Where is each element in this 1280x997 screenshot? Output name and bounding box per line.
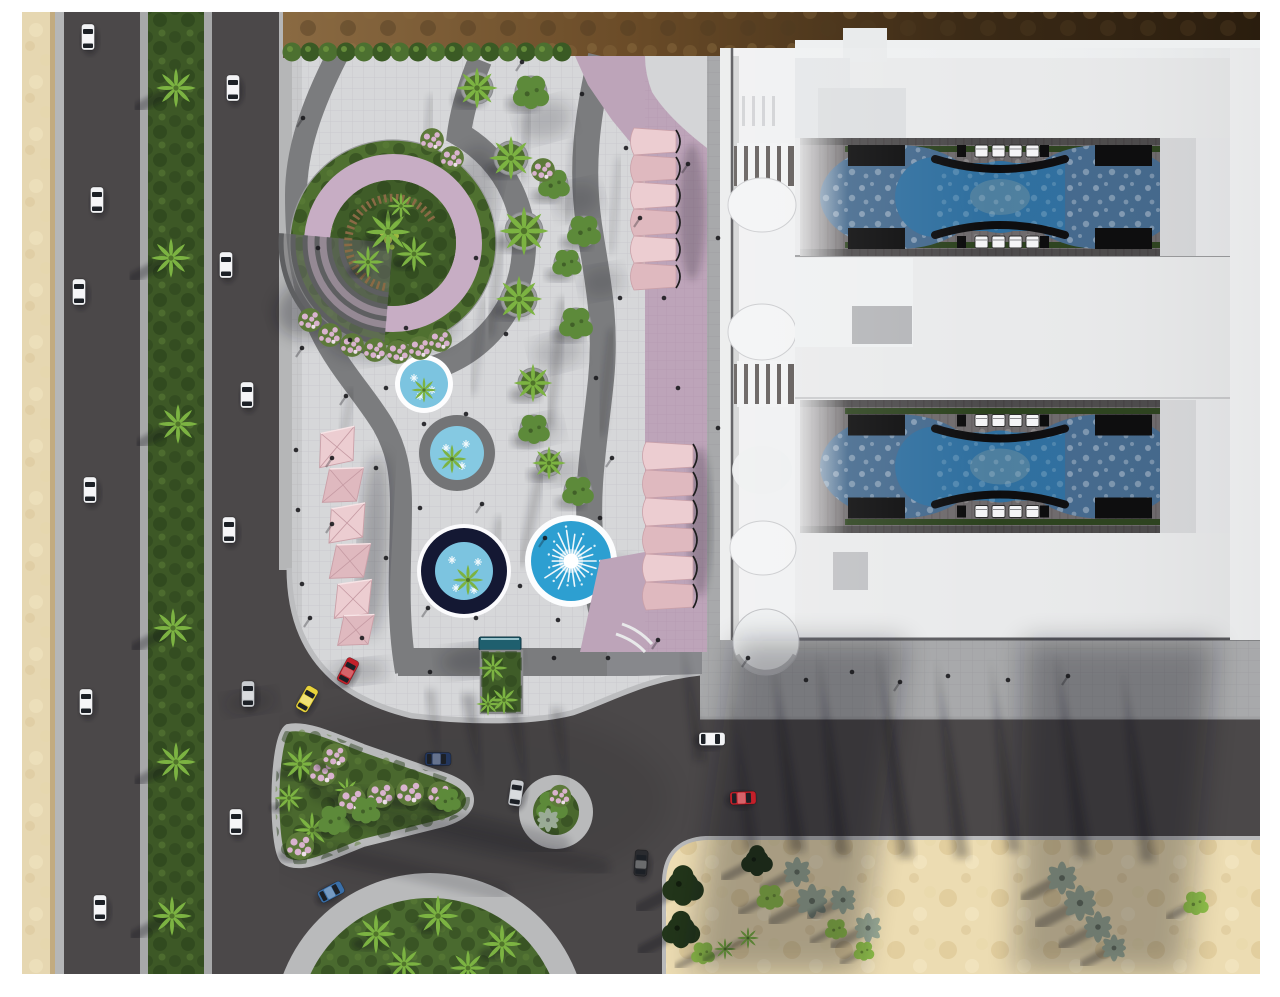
car-rear-window: [74, 299, 84, 304]
car-roof: [92, 198, 103, 206]
fbush-glyph: [363, 338, 387, 362]
canopy-panel: [643, 526, 694, 554]
pool-navy-ring: [417, 524, 511, 618]
pedestrian-dot: [360, 636, 365, 641]
palm-glyph: [496, 276, 542, 322]
promenade-canopy-panel: [631, 128, 681, 155]
west-road-southbound: [64, 12, 140, 974]
canopy-panel: [631, 128, 677, 155]
fbush-tree: [531, 158, 555, 182]
fbush-tree: [298, 308, 322, 332]
pedestrian: [296, 508, 301, 513]
canopy-panel: [643, 470, 694, 498]
palm-glyph: [156, 742, 196, 782]
palm-glyph: [479, 654, 508, 683]
hedge-highlight: [323, 46, 329, 52]
pedestrian-dot: [464, 412, 469, 417]
car-windshield: [85, 482, 95, 487]
car-rear-window: [83, 44, 93, 49]
car-rear-window: [81, 709, 91, 714]
fbush-glyph: [420, 128, 444, 152]
palm-glyph: [514, 364, 553, 403]
median-curb-east: [204, 12, 212, 974]
hedge-highlight: [341, 46, 347, 52]
pedestrian-dot: [404, 326, 409, 331]
fbush-glyph: [549, 785, 571, 807]
hedge-bush: [337, 43, 356, 62]
car-roof: [83, 35, 94, 43]
pedestrian: [348, 338, 353, 343]
pedestrian-dot: [610, 456, 615, 461]
bush-tree: [567, 216, 601, 247]
palm-glyph: [453, 565, 484, 596]
pedestrian-dot: [418, 506, 423, 511]
hedge-highlight: [287, 46, 293, 52]
car-windshield: [746, 793, 751, 803]
hedge-bush: [427, 43, 446, 62]
splash-drop: [582, 533, 584, 535]
car-rear-window: [732, 793, 737, 803]
palm-tree: [489, 136, 533, 180]
pedestrian-dot: [898, 680, 903, 685]
pedestrian-dot: [294, 448, 299, 453]
canopy-shadow-north: [679, 144, 705, 280]
car-rear-window: [221, 272, 231, 277]
pedestrian-dot: [618, 296, 623, 301]
car-roof: [242, 393, 253, 401]
pedestrian-dot: [656, 638, 661, 643]
pedestrian: [294, 448, 299, 453]
sand-strip-west-texture: [22, 12, 50, 974]
bush-glyph: [559, 308, 593, 339]
car-windshield: [81, 694, 91, 699]
canopy-panel: [643, 442, 694, 470]
fbush-glyph: [340, 333, 364, 357]
car-rear-window: [85, 497, 95, 502]
splash-drop: [548, 566, 550, 568]
pedestrian-dot: [384, 386, 389, 391]
pedestrian: [618, 296, 623, 301]
promenade-canopy-panel: [643, 470, 698, 498]
hedge-bush: [373, 43, 392, 62]
bush-glyph: [435, 789, 460, 812]
fbush-glyph: [531, 158, 555, 182]
car-roof: [221, 263, 232, 271]
pedestrian-dot: [474, 256, 479, 261]
pedestrian-dot: [662, 296, 667, 301]
car-windshield: [83, 29, 93, 34]
palm-glyph: [158, 404, 198, 444]
bush-glyph: [552, 250, 581, 277]
palm-tree: [453, 565, 484, 596]
building-complex: [720, 28, 1260, 640]
car-rear-window: [228, 95, 238, 100]
palm-glyph: [396, 236, 432, 272]
palm-tree: [438, 445, 467, 474]
water-bench-and-planter-box: [476, 637, 522, 716]
car-rear-window: [635, 869, 645, 874]
pedestrian: [418, 506, 423, 511]
car-windshield: [74, 284, 84, 289]
car-windshield: [228, 80, 238, 85]
hedge-bush: [499, 43, 518, 62]
fbush-glyph: [322, 743, 347, 768]
west-boulevard: [22, 12, 292, 974]
pedestrian: [504, 332, 509, 337]
pedestrian-dot: [344, 394, 349, 399]
hedge-bush: [409, 43, 428, 62]
fbush-glyph: [298, 308, 322, 332]
car-windshield: [224, 522, 234, 527]
car-rear-window: [243, 701, 253, 706]
hedge-bush: [319, 43, 338, 62]
hedge-bush: [355, 43, 374, 62]
car-roof: [510, 790, 522, 799]
palm-tree: [411, 377, 436, 402]
splash-drop: [591, 573, 593, 575]
hedge-bush: [535, 43, 554, 62]
tower-shadow-east: [1015, 641, 1215, 974]
bush-tree: [562, 477, 594, 506]
car-rear-window: [427, 754, 432, 764]
pedestrian: [474, 616, 479, 621]
car-windshield: [243, 686, 253, 691]
pedestrian-dot: [518, 584, 523, 589]
tree-shadow: [382, 212, 402, 221]
splash-drop: [566, 584, 568, 586]
hedge-bush: [301, 43, 320, 62]
car-roof: [737, 792, 745, 803]
splash-drop: [553, 540, 555, 542]
pedestrian: [676, 386, 681, 391]
pedestrian-dot: [1006, 678, 1011, 683]
scene: [22, 12, 1260, 997]
car-rear-window: [701, 734, 706, 744]
canopy-panel: [631, 182, 677, 209]
pedestrian-dot: [428, 670, 433, 675]
car-roof: [243, 692, 254, 700]
splash-drop: [548, 553, 550, 555]
pedestrian: [552, 656, 557, 661]
pedestrian-dot: [300, 582, 305, 587]
pedestrian-dot: [594, 376, 599, 381]
pedestrian: [316, 246, 321, 251]
palm-tree: [514, 364, 553, 403]
roof-sheen: [720, 48, 1260, 640]
palm-glyph: [476, 692, 499, 715]
pedestrian: [474, 256, 479, 261]
promenade-canopy-panel: [643, 442, 698, 470]
palm-glyph: [275, 784, 304, 813]
pedestrian-dot: [316, 246, 321, 251]
hedge-highlight: [449, 46, 455, 52]
car-roof: [81, 700, 92, 708]
pedestrian: [422, 422, 427, 427]
pedestrian-dot: [850, 670, 855, 675]
hedge-bush: [445, 43, 464, 62]
hedge-bush: [283, 43, 302, 62]
pedestrian: [300, 582, 305, 587]
splash-drop: [553, 580, 555, 582]
car-rear-window: [92, 207, 102, 212]
pedestrian-dot: [624, 146, 629, 151]
pedestrian-dot: [348, 338, 353, 343]
pedestrian: [404, 326, 409, 331]
palm-glyph: [356, 914, 396, 954]
pedestrian-dot: [480, 502, 485, 507]
canopy-panel: [643, 498, 694, 526]
pedestrian: [384, 556, 389, 561]
pedestrian-dot: [422, 422, 427, 427]
car-rear-window: [95, 915, 105, 920]
west-sidewalk-outer: [55, 12, 64, 974]
splash-drop: [581, 583, 583, 585]
hedge-highlight: [503, 46, 509, 52]
pedestrian-dot: [301, 116, 306, 121]
car-windshield: [95, 900, 105, 905]
pedestrian: [850, 670, 855, 675]
bush-glyph: [513, 76, 549, 109]
bush-glyph: [562, 477, 594, 506]
hedge-highlight: [395, 46, 401, 52]
canopy-panel: [643, 582, 694, 610]
promenade-canopy-panel: [643, 554, 698, 582]
fbush-tree: [340, 333, 364, 357]
car-windshield: [715, 734, 720, 744]
fbush-glyph: [440, 146, 464, 170]
palm-glyph: [411, 377, 436, 402]
bush-glyph: [318, 806, 350, 835]
car-windshield: [231, 814, 241, 819]
tree-shadow: [270, 803, 291, 813]
pedestrian-dot: [308, 616, 313, 621]
pedestrian-dot: [746, 656, 751, 661]
fbush-glyph: [428, 328, 452, 352]
fbush-glyph: [386, 340, 410, 364]
car-windshield: [441, 754, 446, 764]
bush-tree: [518, 415, 550, 444]
car-windshield: [242, 387, 252, 392]
bush-glyph: [352, 797, 381, 823]
canopy-panel: [631, 155, 677, 182]
car-windshield: [92, 192, 102, 197]
pedestrian-dot: [716, 236, 721, 241]
canopy-panel: [643, 554, 694, 582]
hedge-bush: [517, 43, 536, 62]
hedge-highlight: [467, 46, 473, 52]
pedestrian-dot: [716, 426, 721, 431]
promenade-canopy-panel: [643, 498, 698, 526]
palm-tree: [496, 276, 542, 322]
car-rear-window: [242, 402, 252, 407]
promenade-canopy-panel: [631, 263, 681, 290]
pedestrian-dot: [556, 618, 561, 623]
splash-drop: [565, 525, 567, 527]
car-rear-window: [224, 537, 234, 542]
pedestrian-dot: [606, 656, 611, 661]
bush-glyph: [567, 216, 601, 247]
car-roof: [231, 820, 242, 828]
pedestrian: [384, 386, 389, 391]
promenade-canopy-panel: [631, 236, 681, 263]
car-roof: [433, 754, 441, 765]
site-plan-rendering: Aerial 3D site-plan rendering: plaza wit…: [0, 0, 1280, 997]
hedge-highlight: [521, 46, 527, 52]
promenade-canopy-panel: [631, 182, 681, 209]
pedestrian-dot: [374, 466, 379, 471]
palm-glyph: [156, 68, 196, 108]
pedestrian: [598, 516, 603, 521]
palm-glyph: [388, 193, 415, 220]
pedestrian-dot: [580, 92, 585, 97]
pedestrian-dot: [474, 616, 479, 621]
hedge-bush: [391, 43, 410, 62]
hedge-highlight: [305, 46, 311, 52]
pedestrian-dot: [330, 456, 335, 461]
pedestrian: [662, 296, 667, 301]
car-roof: [74, 290, 85, 298]
pedestrian: [606, 656, 611, 661]
car-roof: [224, 528, 235, 536]
palm-glyph: [489, 136, 533, 180]
median-curb-west: [140, 12, 148, 974]
pedestrian: [428, 670, 433, 675]
pedestrian: [716, 426, 721, 431]
pedestrian-dot: [676, 386, 681, 391]
pedestrian-dot: [300, 346, 305, 351]
car-rear-window: [231, 829, 241, 834]
fbush-tree: [386, 340, 410, 364]
pedestrian: [374, 466, 379, 471]
palm-tree: [476, 692, 499, 715]
pedestrian: [518, 584, 523, 589]
car-roof: [95, 906, 106, 914]
bush-glyph: [518, 415, 550, 444]
bush-tree: [513, 76, 549, 109]
pedestrian: [804, 678, 809, 683]
fbush-tree: [318, 323, 342, 347]
fbush-tree: [549, 785, 571, 807]
promenade-canopy-panel: [643, 582, 698, 610]
palm-tree: [479, 654, 508, 683]
car-windshield: [636, 855, 646, 861]
hedge-highlight: [557, 46, 563, 52]
pedestrian: [360, 636, 365, 641]
car-roof: [85, 488, 96, 496]
fbush-tree: [440, 146, 464, 170]
palm-glyph: [482, 924, 522, 964]
pedestrian-dot: [946, 674, 951, 679]
hedge-highlight: [377, 46, 383, 52]
hedge-highlight: [485, 46, 491, 52]
pedestrian: [1006, 678, 1011, 683]
green-median-texture: [148, 12, 204, 974]
splash-halo: [559, 549, 583, 573]
hedge-bush: [553, 43, 572, 62]
bush-tree: [552, 250, 581, 277]
pedestrian: [624, 146, 629, 151]
palm-glyph: [153, 608, 193, 648]
pedestrian-dot: [638, 216, 643, 221]
pedestrian: [580, 92, 585, 97]
pedestrian-dot: [520, 60, 525, 65]
hedge-highlight: [413, 46, 419, 52]
pedestrian-dot: [1066, 674, 1071, 679]
pedestrian: [464, 412, 469, 417]
hedge-highlight: [359, 46, 365, 52]
palm-glyph: [500, 207, 549, 256]
pedestrian-dot: [543, 536, 548, 541]
car-roof: [228, 86, 239, 94]
canopy-panel: [631, 236, 677, 263]
pedestrian-dot: [384, 556, 389, 561]
hedge-highlight: [431, 46, 437, 52]
palm-tree: [532, 446, 565, 479]
fbush-tree: [363, 338, 387, 362]
hedge-bush: [481, 43, 500, 62]
pedestrian-dot: [426, 606, 431, 611]
pedestrian-dot: [330, 522, 335, 527]
fbush-tree: [420, 128, 444, 152]
palm-tree: [456, 67, 497, 108]
palm-glyph: [152, 896, 192, 936]
promenade-canopy-panel: [631, 155, 681, 182]
car-roof: [635, 860, 647, 869]
palm-glyph: [456, 67, 497, 108]
fbush-tree: [428, 328, 452, 352]
pedestrian: [946, 674, 951, 679]
car-windshield: [221, 257, 231, 262]
fbush-glyph: [318, 323, 342, 347]
palm-glyph: [417, 895, 458, 936]
pedestrian: [556, 618, 561, 623]
pedestrian-dot: [804, 678, 809, 683]
palm-glyph: [352, 246, 384, 278]
palm-tree: [500, 207, 549, 256]
pedestrian-dot: [686, 162, 691, 167]
fbush-glyph: [286, 832, 314, 860]
pedestrian-dot: [552, 656, 557, 661]
palm-glyph: [151, 238, 191, 278]
aerial-render-canvas: Aerial 3D site-plan rendering: plaza wit…: [0, 0, 1280, 997]
palm-glyph: [532, 446, 565, 479]
pedestrian: [594, 376, 599, 381]
palm-glyph: [438, 445, 467, 474]
canopy-panel: [631, 263, 677, 290]
car-roof: [707, 734, 715, 745]
sand-edge-line: [50, 12, 55, 974]
pedestrian-dot: [504, 332, 509, 337]
pedestrian-dot: [598, 516, 603, 521]
pedestrian-dot: [296, 508, 301, 513]
bush-tree: [559, 308, 593, 339]
fbush-glyph: [396, 778, 424, 806]
pedestrian: [716, 236, 721, 241]
hedge-bush: [463, 43, 482, 62]
splash-drop: [593, 545, 595, 547]
hedge-highlight: [539, 46, 545, 52]
promenade-canopy-panel: [643, 526, 698, 554]
